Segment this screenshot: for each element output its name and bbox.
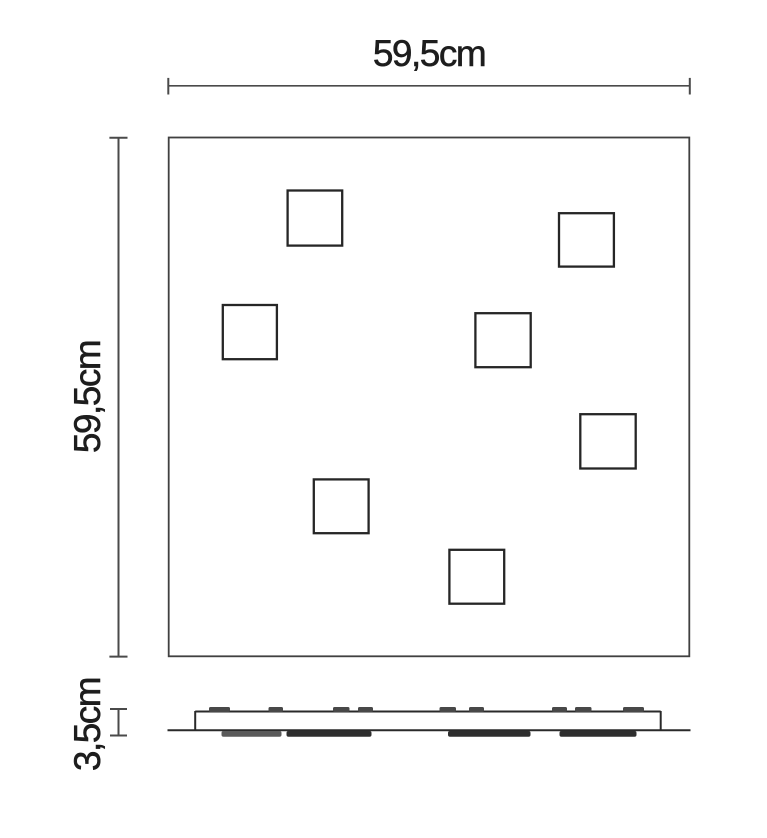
svg-text:3,5cm: 3,5cm bbox=[67, 678, 108, 771]
svg-text:59,5cm: 59,5cm bbox=[373, 33, 485, 74]
svg-text:59,5cm: 59,5cm bbox=[67, 341, 108, 453]
